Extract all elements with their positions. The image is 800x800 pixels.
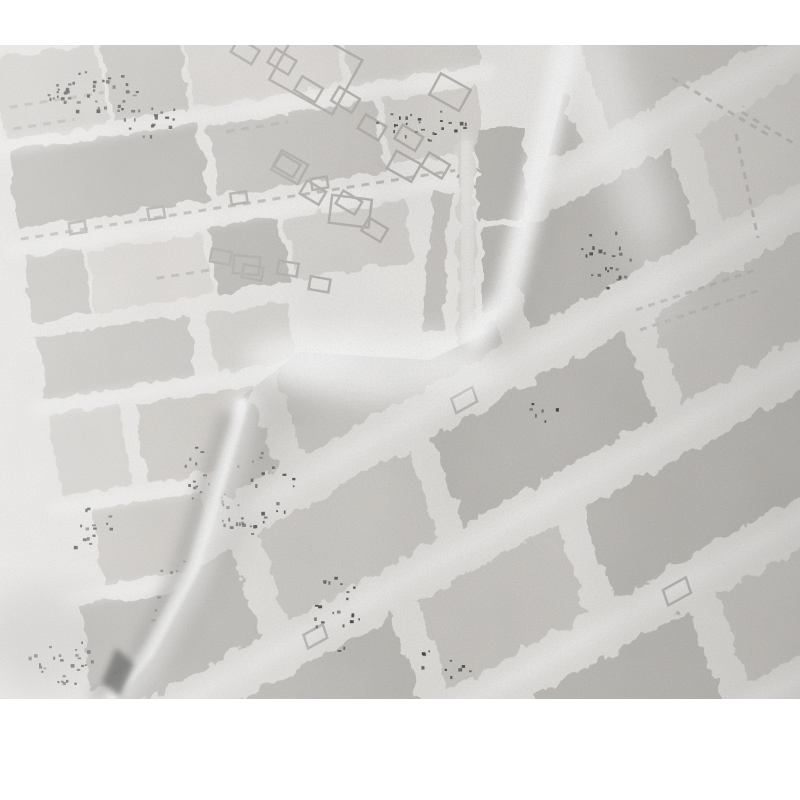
rug-photo-illustration [0,0,800,800]
photo-area [0,0,800,800]
rug-product-photo [0,0,800,800]
page-root [0,0,800,800]
right-shade-overlay [0,45,800,699]
